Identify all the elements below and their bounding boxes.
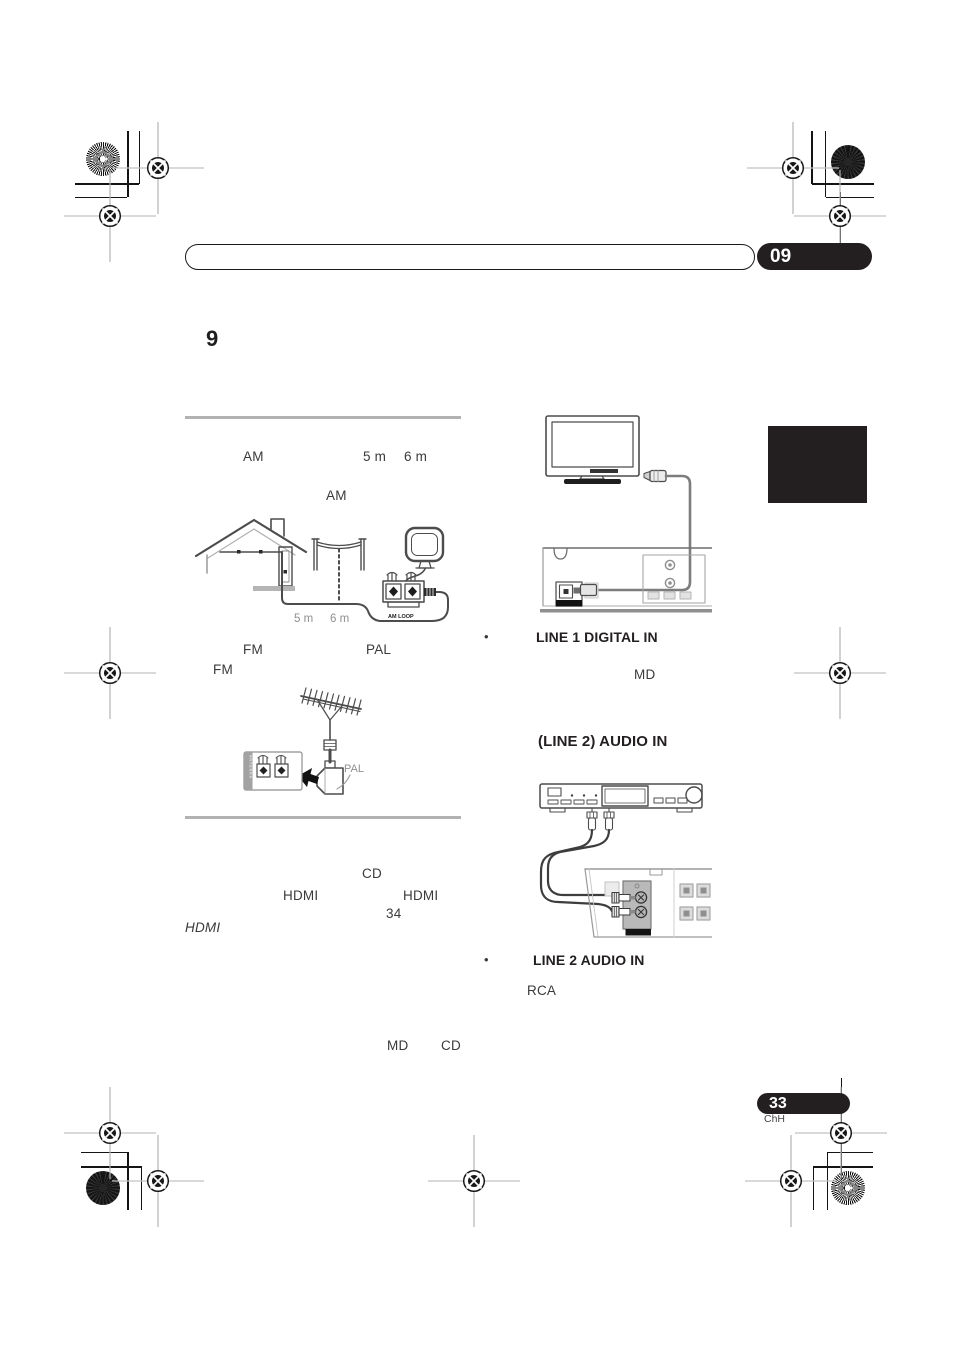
pal-connector [317, 761, 343, 794]
audio-component [540, 784, 702, 812]
manual-page: 09 9 AM 5 m 6 m AM [0, 0, 954, 1351]
optical-input-port [556, 582, 582, 607]
text-fm: FM [243, 642, 263, 657]
registration-target [743, 1133, 839, 1229]
text-fm: FM [213, 662, 233, 677]
text-pal: PAL [366, 642, 391, 657]
section-divider [185, 816, 461, 819]
page-number-badge: 33 [757, 1093, 850, 1114]
registration-target [62, 625, 158, 721]
yagi-antenna [301, 688, 361, 762]
audio-connection-diagram [528, 782, 712, 942]
chapter-badge: 09 [757, 243, 872, 270]
text-am: AM [243, 449, 264, 464]
receiver-rear-panel [543, 548, 712, 606]
registration-target [110, 1133, 206, 1229]
registration-target [426, 1133, 522, 1229]
optical-cable-plug [644, 471, 666, 482]
text-5m: 5 m [363, 449, 386, 464]
distance-5m-label: 5 m [294, 613, 313, 625]
subheading-line2-audio-in: (LINE 2) AUDIO IN [538, 734, 667, 750]
text-hdmi: HDMI [283, 888, 318, 903]
text-rca: RCA [527, 983, 556, 998]
text-6m: 6 m [404, 449, 427, 464]
text-cd: CD [441, 1038, 461, 1053]
header-bar [185, 244, 755, 270]
fm-antenna-diagram: PAL ANTENNA [240, 682, 465, 802]
shelf-line [540, 609, 712, 613]
bullet-icon: • [484, 629, 489, 644]
text-md: MD [634, 667, 655, 682]
am-antenna-diagram: AM LOOP 5 m 6 m [192, 512, 464, 642]
text-am: AM [326, 488, 347, 503]
distance-6m-label: 6 m [330, 613, 349, 625]
tv-drawing [546, 416, 639, 484]
text-md: MD [387, 1038, 408, 1053]
section-number: 9 [206, 328, 218, 350]
antenna-panel [244, 752, 302, 790]
house-drawing [196, 519, 306, 591]
outdoor-wire-span [312, 539, 366, 602]
bullet-icon: • [484, 952, 489, 967]
rca-plugs-at-component [587, 808, 614, 830]
label-line2-audio-in: LINE 2 AUDIO IN [533, 952, 644, 968]
rca-cable-pair [541, 830, 613, 911]
region-code: ChH [764, 1113, 785, 1125]
antenna-panel-label: ANTENNA [249, 755, 253, 779]
tv-connection-diagram [540, 413, 712, 623]
registration-target [62, 168, 158, 264]
chapter-thumb-tab [768, 426, 867, 503]
text-hdmi: HDMI [403, 888, 438, 903]
section-divider [185, 416, 461, 419]
text-cd: CD [362, 866, 382, 881]
text-page-ref: 34 [386, 906, 401, 921]
label-line1-digital-in: LINE 1 DIGITAL IN [536, 629, 658, 645]
optical-plug-at-receiver [574, 585, 597, 596]
am-loop-terminal-label: AM LOOP [388, 614, 414, 620]
text-hdmi-italic: HDMI [185, 920, 220, 935]
registration-target [792, 625, 888, 721]
pal-label: PAL [344, 763, 364, 775]
